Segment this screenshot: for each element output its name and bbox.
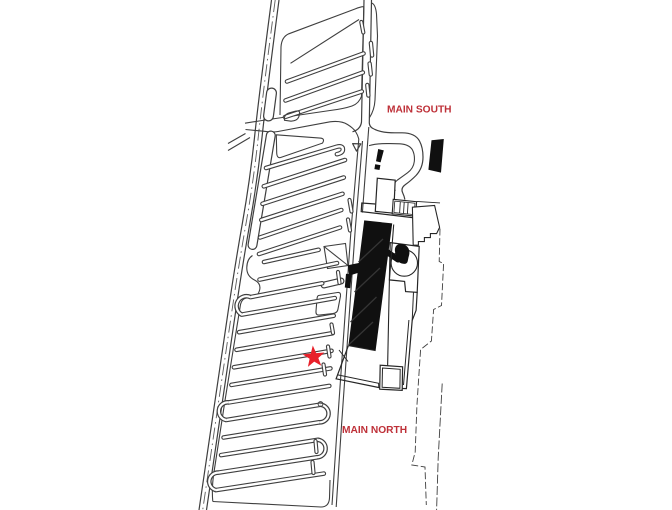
svg-text:MAIN NORTH: MAIN NORTH — [342, 425, 407, 436]
svg-text:MAIN SOUTH: MAIN SOUTH — [387, 105, 452, 116]
